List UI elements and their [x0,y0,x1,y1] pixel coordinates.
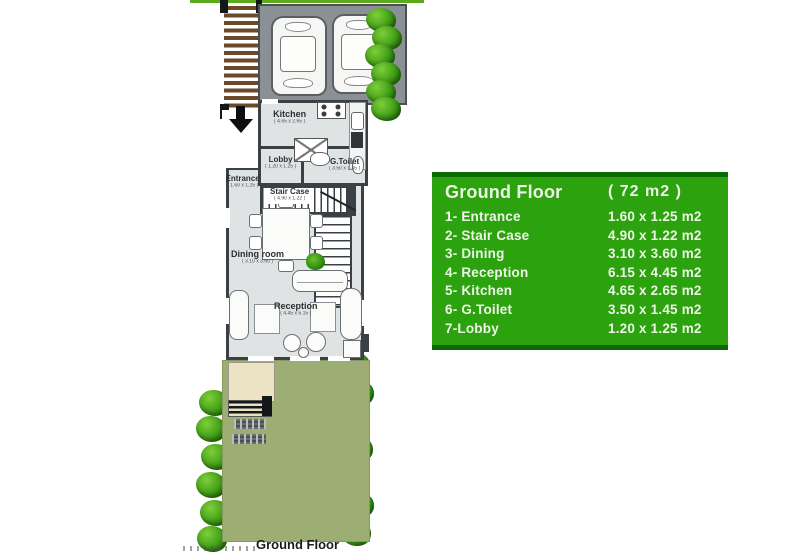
legend-panel: Ground Floor ( 72 m2 ) 1- Entrance 1.60 … [432,172,728,350]
legend-row-size: 4.65 x 2.65 m2 [608,283,702,298]
stove-icon [317,102,346,119]
window [225,208,230,228]
plant-icon [306,253,325,270]
armchair-icon [340,288,362,340]
car-hood [283,78,313,88]
car-top-view-icon [271,16,327,96]
legend-row-size: 1.20 x 1.25 m2 [608,321,702,336]
legend-row-label: 2- Stair Case [445,228,529,243]
wall-stub [220,0,228,13]
wall-stub [361,334,369,352]
legend-row-label: 7-Lobby [445,321,499,336]
legend-row: 4- Reception 6.15 x 4.45 m2 [445,265,715,284]
plan-caption: Ground Floor [256,537,339,552]
legend-row: 2- Stair Case 4.90 x 1.22 m2 [445,228,715,247]
legend-total-area: ( 72 m2 ) [608,183,682,201]
legend-row-label: 5- Kitchen [445,283,512,298]
chair-icon [310,214,323,228]
legend-body: Ground Floor ( 72 m2 ) 1- Entrance 1.60 … [432,177,728,345]
chair-icon [249,236,262,250]
stone-path [234,419,266,429]
room-label-staircase: Stair Case ( 4.90 x 1.22 ) [266,188,313,204]
appliance-icon [351,132,363,148]
cropped-text-fragment [183,546,257,551]
tree-icon [371,97,401,121]
chair-icon [249,214,262,228]
entry-arrow-head [229,119,253,133]
legend-row-size: 4.90 x 1.22 m2 [608,228,702,243]
pergola-slats [224,6,260,114]
room-label-lobby: Lobby ( 1.20 x 1.25 ) [259,156,302,172]
entry-arrow-icon [236,106,245,119]
wall-stub [262,396,272,416]
legend-row: 5- Kitchen 4.65 x 2.65 m2 [445,283,715,302]
legend-title-row: Ground Floor ( 72 m2 ) [445,182,715,209]
room-label-entrance: Entrance ( 1.60 x 1.25 ) [221,175,264,191]
room-label-gtoilet: G.Toilet ( 3.50 x 1.45 ) [323,158,366,174]
sink-icon [351,112,364,130]
side-table-icon [298,347,309,358]
car-windshield [285,22,311,32]
floorplan-page: Kitchen ( 4.65 x 2.65 ) Lobby ( 1.20 x 1… [0,0,800,553]
chair-icon [310,236,323,250]
room-label-reception: Reception ( 4.45 x 6.15 ) [274,302,318,319]
sofa-icon [229,290,249,340]
pouf-icon [306,332,326,352]
room-label-kitchen: Kitchen ( 4.65 x 2.65 ) [268,110,311,127]
stone-path [232,434,266,444]
sofa-icon [292,270,348,292]
legend-row: 1- Entrance 1.60 x 1.25 m2 [445,209,715,228]
legend-row-label: 6- G.Toilet [445,302,512,317]
legend-bottom-stripe [432,345,728,350]
balcony-step [343,340,361,358]
legend-row-size: 3.50 x 1.45 m2 [608,302,702,317]
legend-row-label: 1- Entrance [445,209,521,224]
legend-row-label: 3- Dining [445,246,505,261]
legend-row: 6- G.Toilet 3.50 x 1.45 m2 [445,302,715,321]
legend-row-label: 4- Reception [445,265,528,280]
window [248,356,274,361]
car-roof [280,36,316,72]
legend-row: 3- Dining 3.10 x 3.60 m2 [445,246,715,265]
legend-row-size: 1.60 x 1.25 m2 [608,209,702,224]
legend-row-size: 6.15 x 4.45 m2 [608,265,702,280]
room-label-dining: Dining room ( 3.10 x 3.60 ) [231,250,284,267]
legend-title: Ground Floor [445,182,562,202]
legend-row: 7-Lobby 1.20 x 1.25 m2 [445,321,715,340]
door-gap [262,99,278,104]
legend-row-size: 3.10 x 3.60 m2 [608,246,702,261]
sofa-cushion-line [297,282,342,283]
